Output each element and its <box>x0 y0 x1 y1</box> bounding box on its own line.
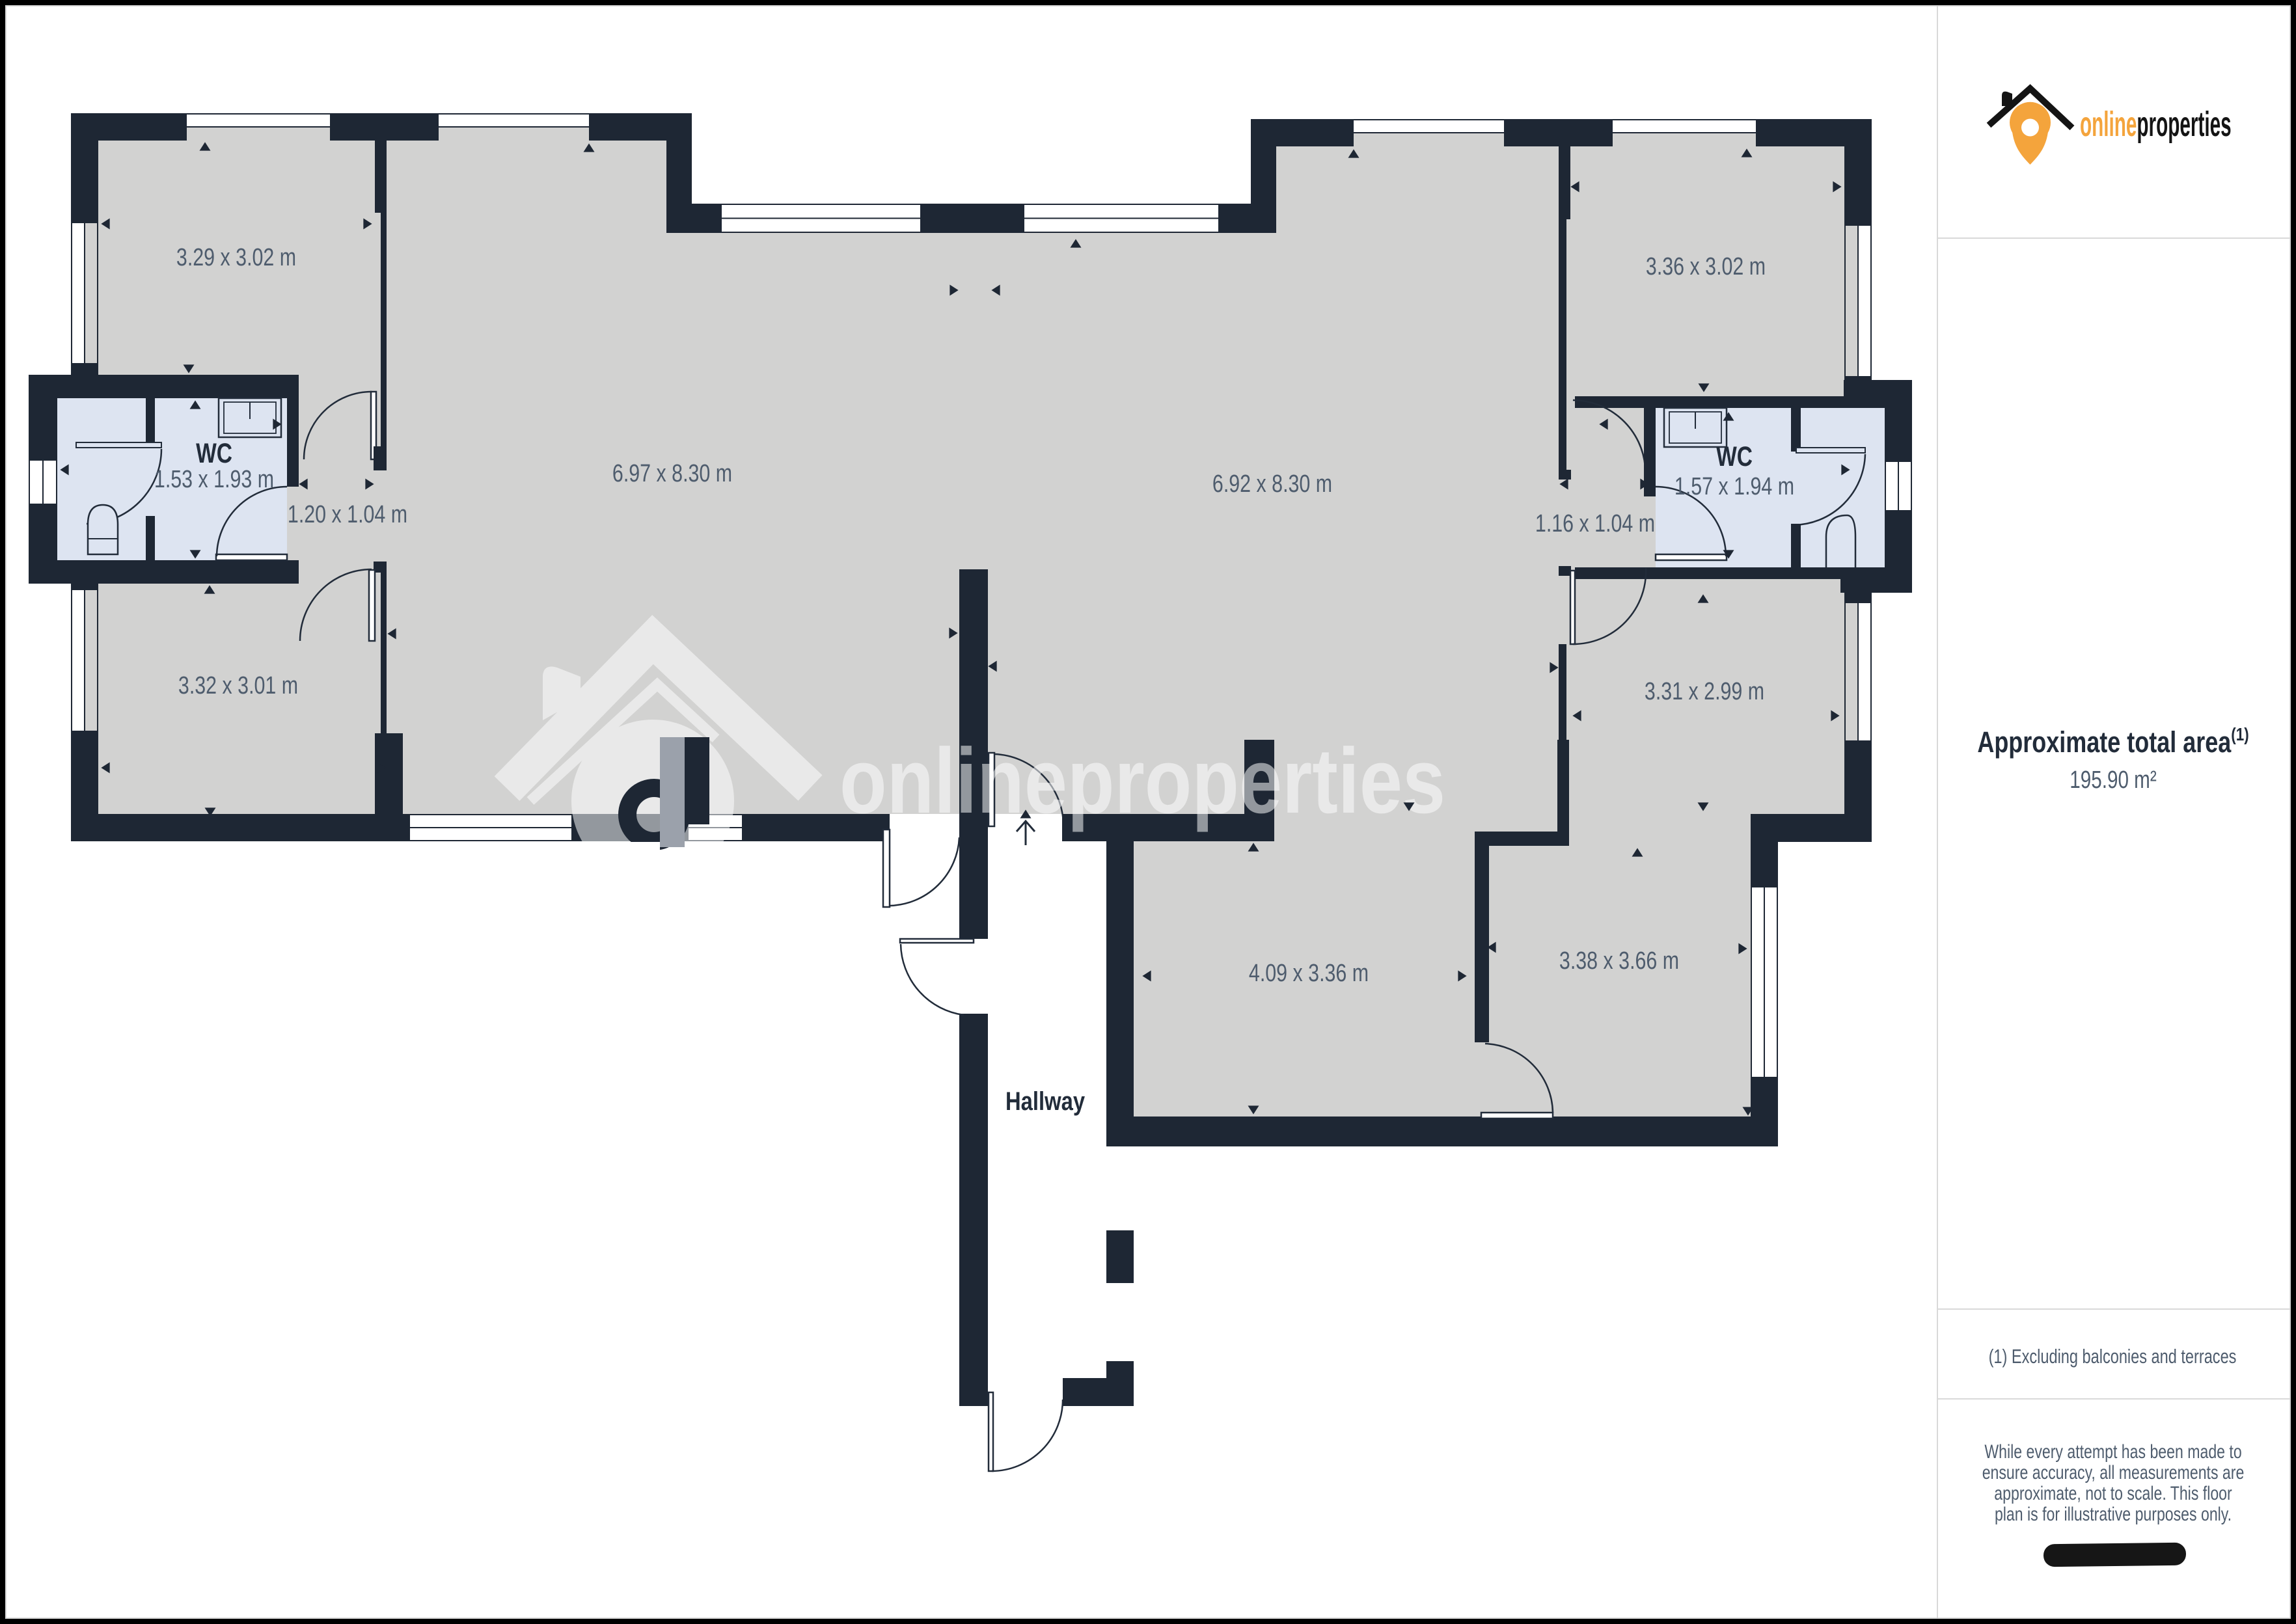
svg-text:Hallway: Hallway <box>1005 1087 1086 1116</box>
svg-text:3.31 x 2.99 m: 3.31 x 2.99 m <box>1645 678 1764 705</box>
svg-text:onlineproperties: onlineproperties <box>840 729 1445 832</box>
svg-text:1.53 x 1.93 m: 1.53 x 1.93 m <box>154 466 274 493</box>
svg-text:ensure accuracy, all measureme: ensure accuracy, all measurements are <box>1982 1461 2245 1483</box>
svg-text:3.36 x 3.02 m: 3.36 x 3.02 m <box>1646 253 1766 280</box>
svg-text:3.32 x 3.01 m: 3.32 x 3.01 m <box>178 672 298 699</box>
svg-text:(1) Excluding balconies and te: (1) Excluding balconies and terraces <box>1989 1345 2237 1368</box>
svg-text:onlineproperties: onlineproperties <box>2080 105 2232 144</box>
svg-text:3.38 x 3.66 m: 3.38 x 3.66 m <box>1559 947 1679 975</box>
svg-text:195.90 m²: 195.90 m² <box>2070 766 2156 794</box>
svg-text:approximate, not to scale. Thi: approximate, not to scale. This floor <box>1994 1482 2232 1504</box>
svg-text:WC: WC <box>1716 441 1753 472</box>
svg-text:plan is for illustrative purpo: plan is for illustrative purposes only. <box>1995 1503 2232 1525</box>
svg-text:1.16 x 1.04 m: 1.16 x 1.04 m <box>1535 510 1655 537</box>
svg-text:1.57 x 1.94 m: 1.57 x 1.94 m <box>1674 473 1794 500</box>
svg-text:3.29 x 3.02 m: 3.29 x 3.02 m <box>176 244 296 271</box>
svg-text:6.97 x 8.30 m: 6.97 x 8.30 m <box>612 460 732 487</box>
svg-text:WC: WC <box>196 438 232 469</box>
svg-text:1.20 x 1.04 m: 1.20 x 1.04 m <box>288 501 407 528</box>
svg-text:4.09 x 3.36 m: 4.09 x 3.36 m <box>1249 960 1369 987</box>
svg-text:Approximate total area(1): Approximate total area(1) <box>1977 725 2248 759</box>
svg-text:While every attempt has been m: While every attempt has been made to <box>1984 1441 2241 1463</box>
svg-text:6.92 x 8.30 m: 6.92 x 8.30 m <box>1212 470 1332 498</box>
